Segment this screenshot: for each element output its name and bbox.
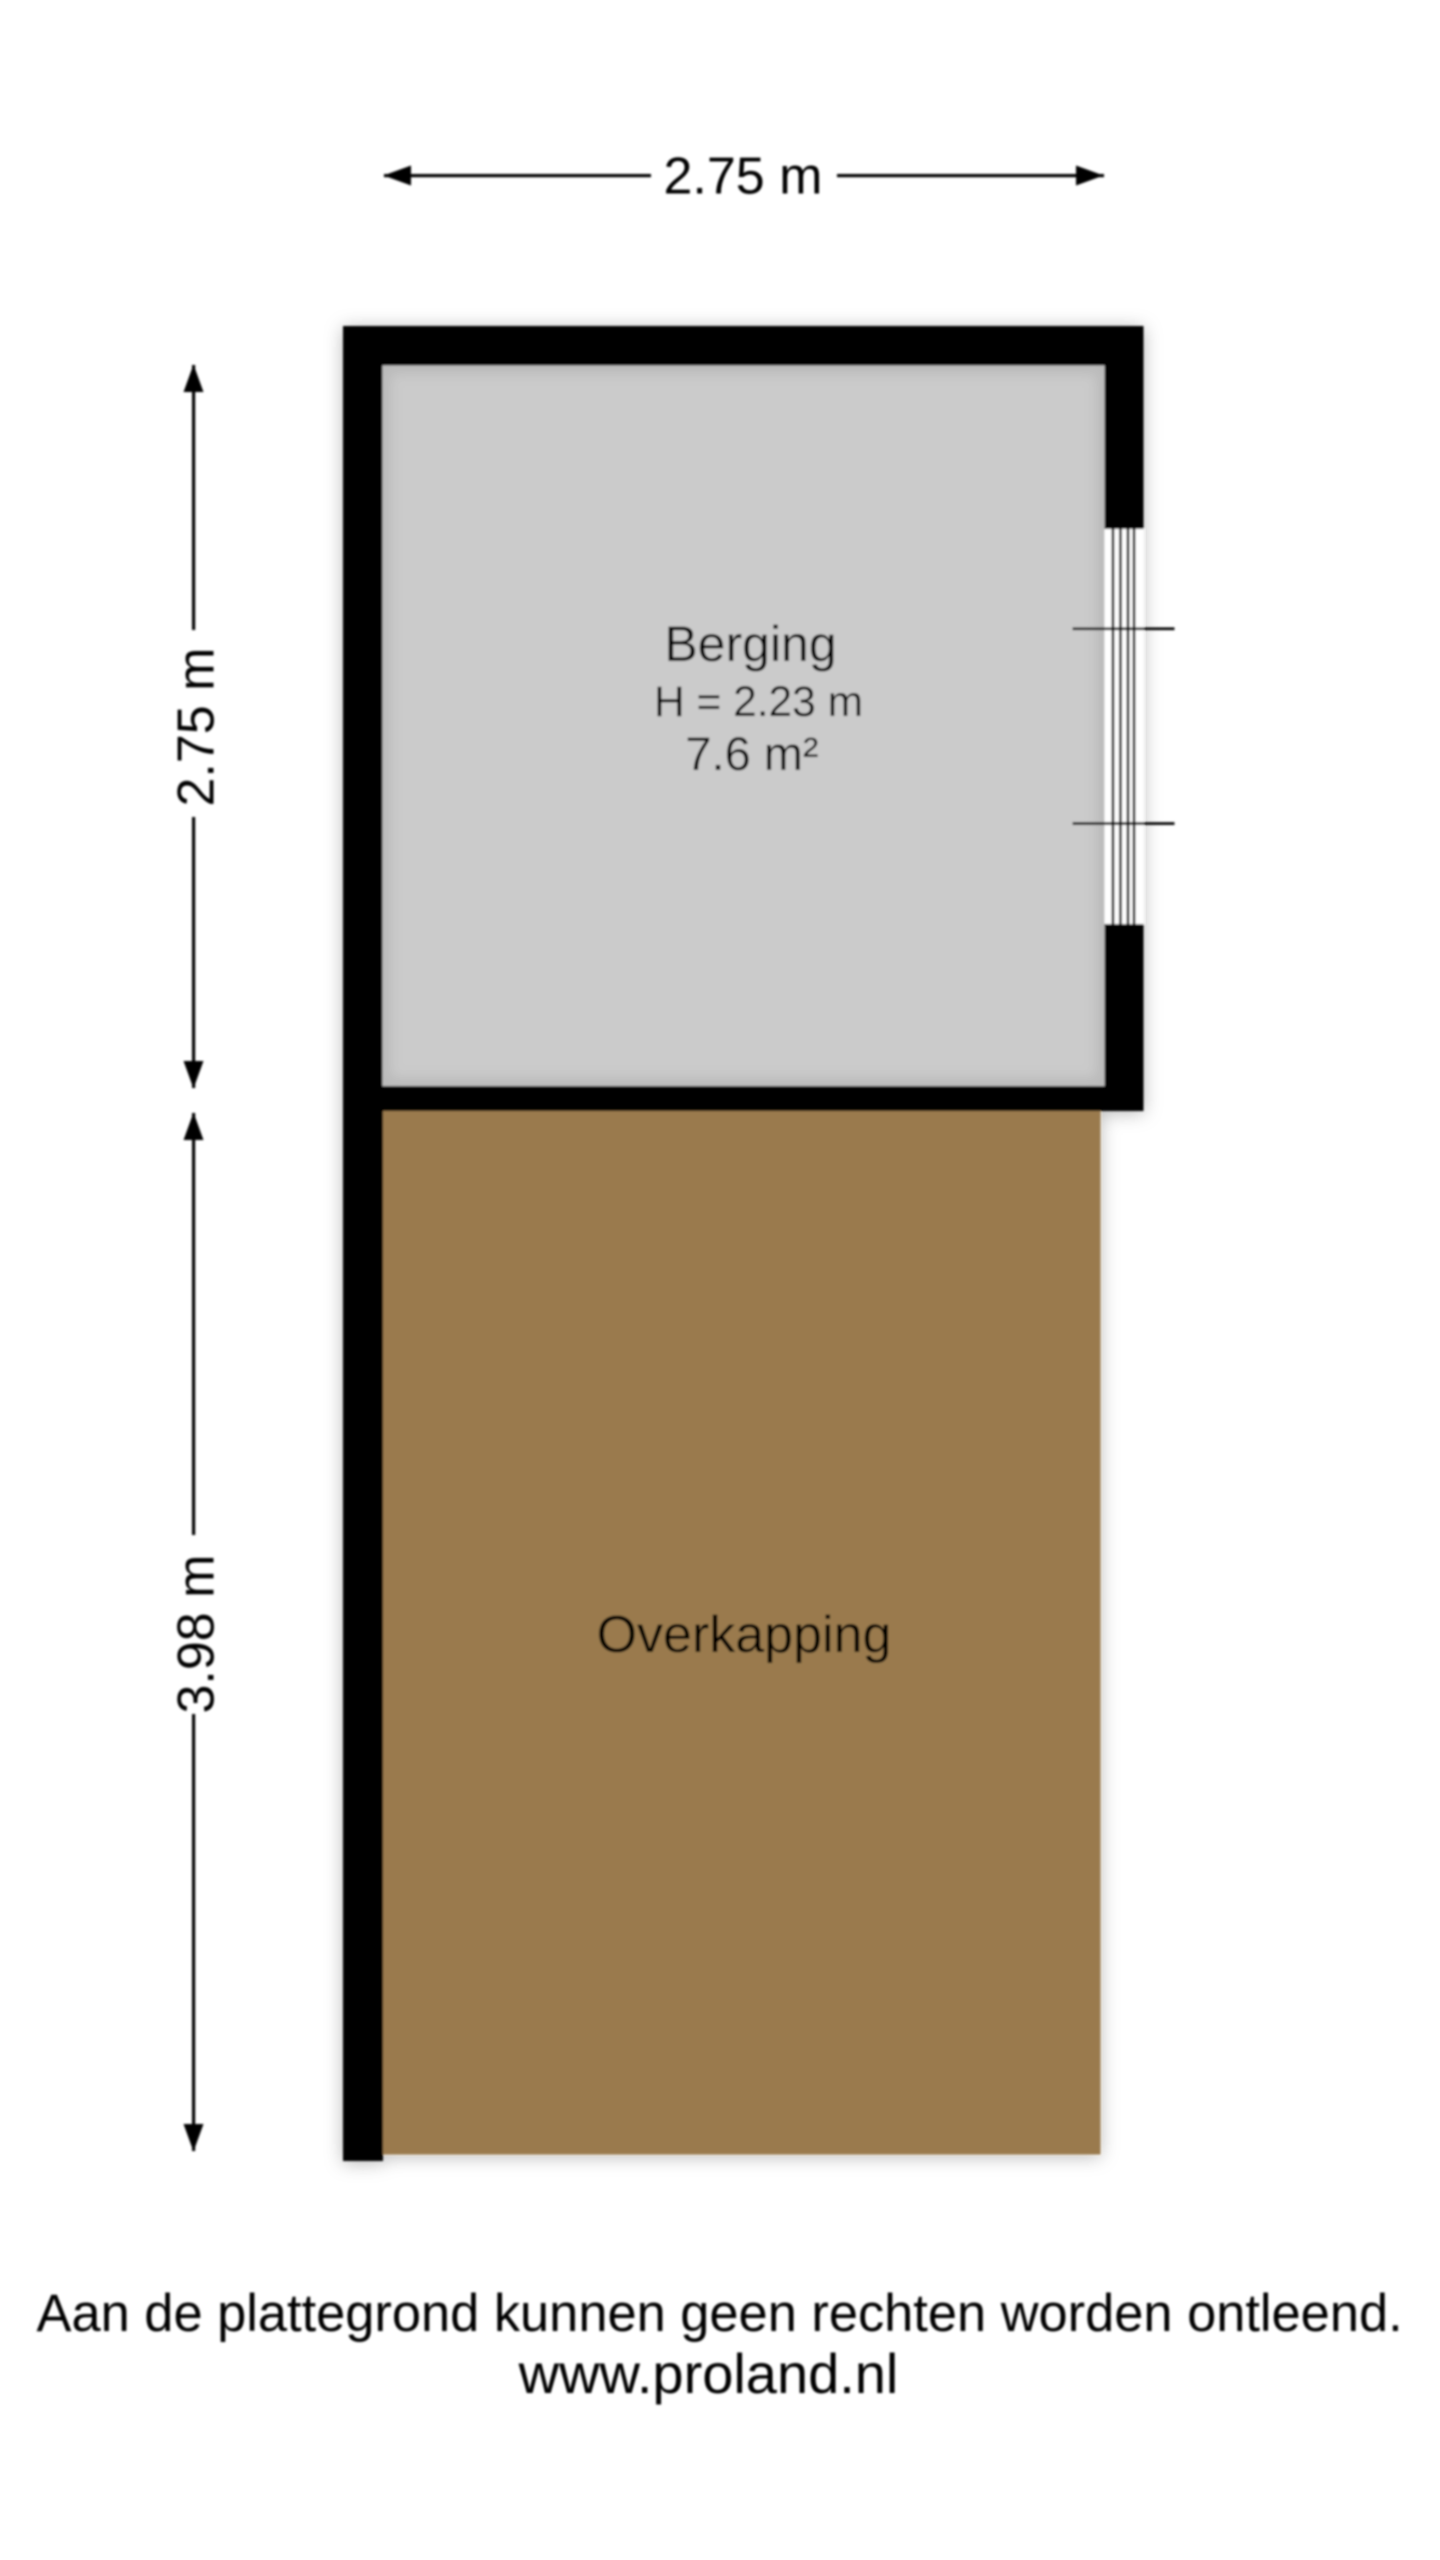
svg-text:Overkapping: Overkapping (597, 1606, 892, 1664)
svg-text:2.75 m: 2.75 m (168, 648, 226, 807)
svg-text:7.6 m²: 7.6 m² (685, 727, 818, 780)
svg-text:www.proland.nl: www.proland.nl (518, 2342, 899, 2405)
svg-text:2.75 m: 2.75 m (664, 148, 823, 206)
svg-text:Aan de plattegrond kunnen geen: Aan de plattegrond kunnen geen rechten w… (37, 2285, 1403, 2343)
svg-text:H = 2.23 m: H = 2.23 m (654, 679, 863, 726)
svg-text:3.98 m: 3.98 m (168, 1555, 226, 1714)
svg-text:Berging: Berging (664, 616, 836, 672)
